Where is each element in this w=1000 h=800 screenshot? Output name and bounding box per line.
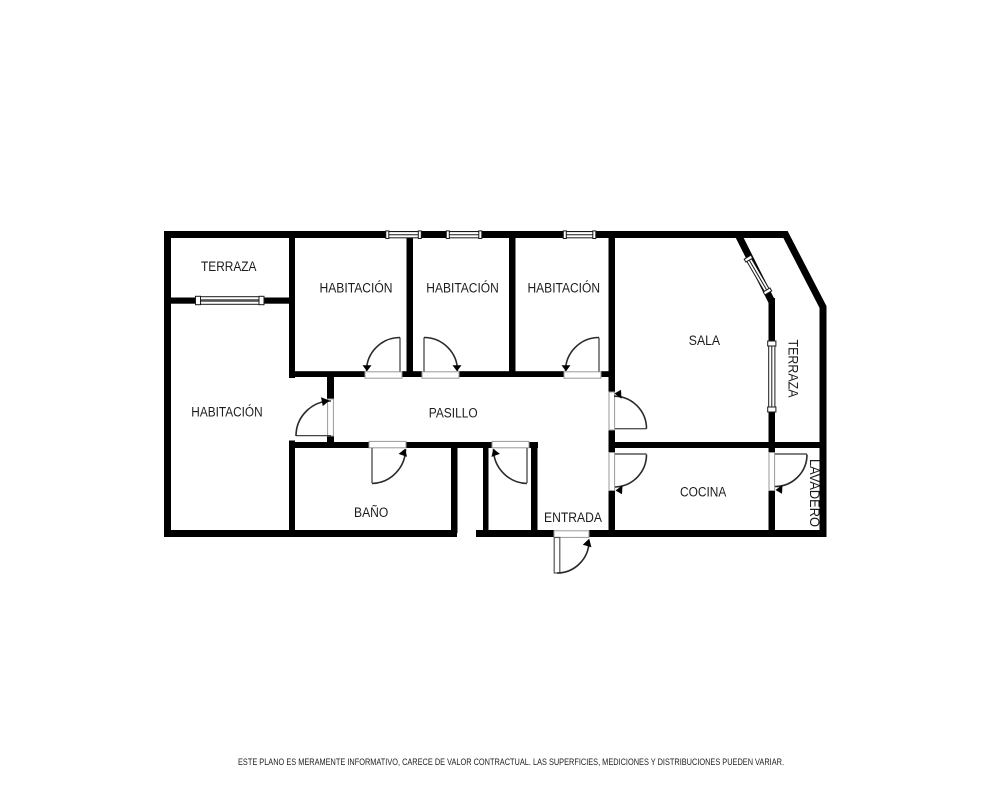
svg-text:HABITACIÓN: HABITACIÓN: [191, 404, 262, 419]
svg-text:HABITACIÓN: HABITACIÓN: [528, 281, 601, 296]
svg-text:HABITACIÓN: HABITACIÓN: [426, 281, 499, 296]
svg-text:TERRAZA: TERRAZA: [786, 340, 801, 398]
svg-text:BAÑO: BAÑO: [354, 505, 388, 520]
svg-text:HABITACIÓN: HABITACIÓN: [320, 281, 393, 296]
svg-text:ENTRADA: ENTRADA: [544, 510, 602, 525]
svg-text:TERRAZA: TERRAZA: [201, 259, 257, 274]
svg-text:LAVADERO: LAVADERO: [807, 459, 822, 527]
svg-text:PASILLO: PASILLO: [429, 406, 478, 421]
svg-text:ESTE PLANO ES MERAMENTE INFORM: ESTE PLANO ES MERAMENTE INFORMATIVO, CAR…: [238, 757, 784, 767]
svg-text:COCINA: COCINA: [680, 484, 726, 499]
svg-text:SALA: SALA: [689, 333, 720, 348]
